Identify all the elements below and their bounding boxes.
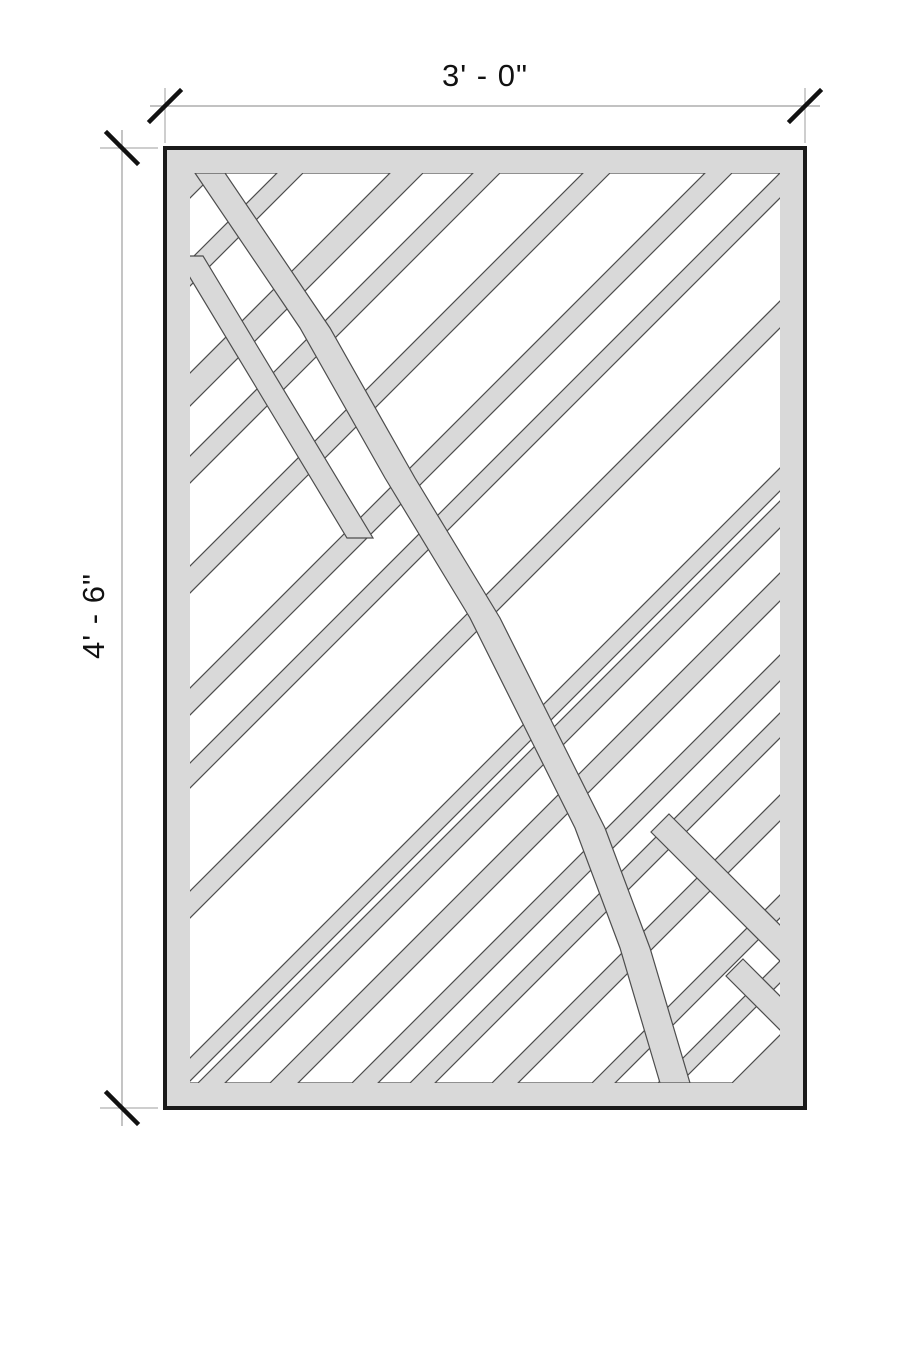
width-dimension-label: 3' - 0" — [442, 58, 528, 94]
panel-drawing-svg — [0, 0, 900, 1350]
panel-group — [0, 148, 900, 1108]
height-dimension-label: 4' - 6" — [76, 573, 112, 659]
drawing-canvas: 3' - 0" 4' - 6" — [0, 0, 900, 1350]
